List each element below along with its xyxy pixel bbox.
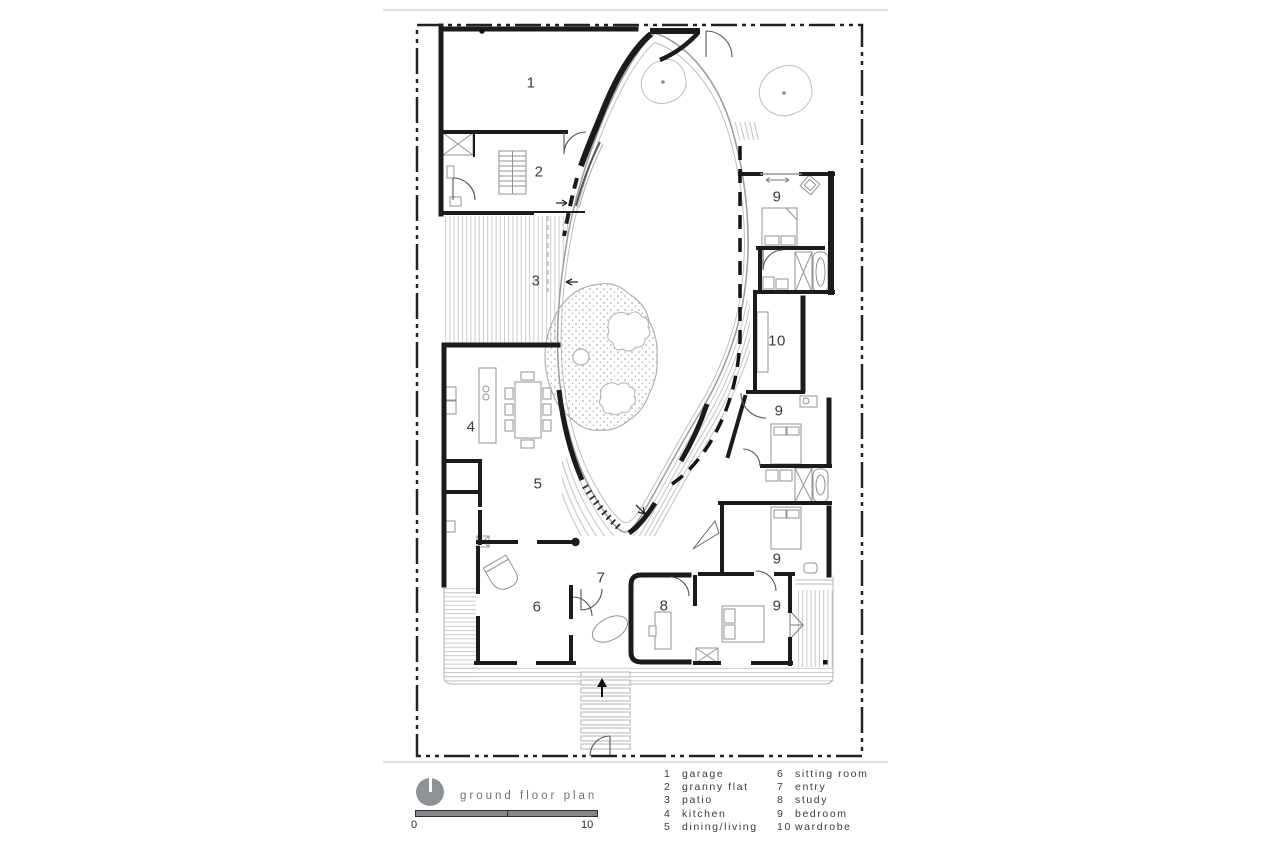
legend-item: 6sitting room [777,768,868,781]
legend-item-label: bedroom [795,808,848,821]
legend-item-label: kitchen [682,808,726,821]
room-label-patio: 3 [532,273,541,290]
legend-item-number: 8 [777,794,795,807]
room-label-bedroom-3: 9 [773,551,782,568]
north-indicator-icon [416,778,444,806]
room-label-sitting-room: 6 [533,599,542,616]
scale-bar [415,810,598,817]
legend-item-number: 2 [664,781,682,794]
north-notch [429,778,432,792]
legend-item-label: dining/living [682,821,758,834]
room-label-dining-living: 5 [534,476,543,493]
legend-item: 3patio [664,794,758,807]
legend-item: 10wardrobe [777,821,868,834]
legend-item-label: wardrobe [795,821,852,834]
room-label-bedroom-2: 9 [775,403,784,420]
wall-cap [571,538,579,546]
legend-item-label: granny flat [682,781,749,794]
plan-title: ground floor plan [460,790,597,802]
shelf [800,396,817,407]
small-tree-icon [759,65,812,115]
courtyard-oval [558,33,749,532]
legend-item: 9bedroom [777,808,868,821]
room-label-bedroom-1: 9 [773,189,782,206]
legend-item-number: 7 [777,781,795,794]
legend-item: 2granny flat [664,781,758,794]
room-label-garage: 1 [527,75,536,92]
bed [722,606,764,642]
legend-item-label: sitting room [795,768,868,781]
legend-item-label: entry [795,781,826,794]
room-label-study: 8 [660,598,669,615]
floor-plan-page: 1 2 3 4 5 6 7 8 9 10 9 9 9 ground floor … [0,0,1280,853]
bed [762,208,797,248]
legend-item-label: patio [682,794,713,807]
entry-path-steps [581,672,630,749]
legend-item-number: 1 [664,768,682,781]
room-label-granny-flat: 2 [535,164,544,181]
legend-item-number: 9 [777,808,795,821]
door-gap [754,569,774,578]
legend-item: 4kitchen [664,808,758,821]
floor-plan-drawing [0,0,1280,853]
bench [804,563,817,573]
legend-item-number: 6 [777,768,795,781]
legend-item: 1garage [664,768,758,781]
legend-item-number: 4 [664,808,682,821]
legend-item-label: study [795,794,828,807]
scale-end-label: 10 [581,819,593,831]
legend-item-label: garage [682,768,724,781]
bed [771,424,801,464]
legend-item-number: 10 [777,821,795,834]
legend-column-1: 1garage 2granny flat 3patio 4kitchen 5di… [664,768,758,834]
legend-column-2: 6sitting room 7entry 8study 9bedroom 10w… [777,768,868,834]
legend-item: 5dining/living [664,821,758,834]
legend-item: 8study [777,794,868,807]
room-label-wardrobe: 10 [768,333,786,350]
bed [771,507,801,549]
scale-start-label: 0 [411,819,417,831]
room-label-kitchen: 4 [467,419,476,436]
scale-bar-tick [507,811,508,816]
stairs [499,151,526,194]
room-label-entry: 7 [597,570,606,587]
legend-item: 7entry [777,781,868,794]
wardrobe-shelf [757,312,768,372]
legend-item-number: 5 [664,821,682,834]
legend-item-number: 3 [664,794,682,807]
room-label-bedroom-4: 9 [773,598,782,615]
